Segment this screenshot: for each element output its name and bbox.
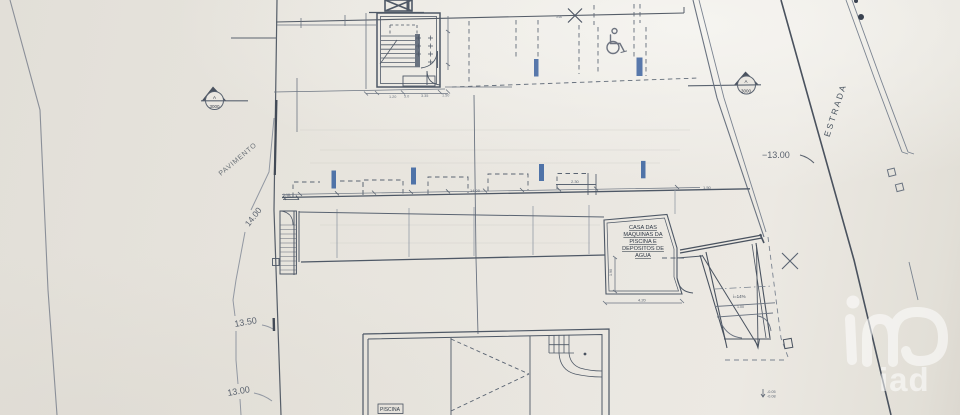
svg-text:1.50: 1.50 [442,94,449,98]
svg-text:iad: iad [879,361,930,398]
svg-text:4.20: 4.20 [638,298,647,303]
svg-text:PISCINA E: PISCINA E [629,239,657,245]
svg-text:2.30: 2.30 [571,179,580,184]
svg-text:-0.08: -0.08 [767,395,776,399]
svg-text:PAVIMENTO: PAVIMENTO [218,142,259,178]
svg-text:PISCINA: PISCINA [380,407,401,413]
svg-text:A: A [213,95,216,100]
svg-text:MAQUINAS DA: MAQUINAS DA [623,232,662,238]
svg-text:1.00: 1.00 [737,305,744,309]
svg-text:14.00: 14.00 [243,205,264,228]
svg-text:3.35: 3.35 [421,94,428,98]
svg-text:1.50: 1.50 [703,185,712,190]
svg-text:CASA DAS: CASA DAS [629,225,657,231]
svg-text:−13.00: −13.00 [762,150,790,160]
svg-text:13.00: 13.00 [227,384,251,398]
svg-text:1.90: 1.90 [609,269,613,276]
svg-text:AGUA: AGUA [635,253,651,259]
svg-text:3000: 3000 [741,89,752,94]
svg-text:3000: 3000 [209,104,220,109]
svg-text:ESTRADA: ESTRADA [822,82,849,138]
svg-text:-0.05: -0.05 [767,390,776,394]
svg-text:14.00: 14.00 [470,188,481,193]
svg-text:5.0: 5.0 [404,95,409,99]
svg-text:13.50: 13.50 [234,315,258,329]
svg-text:A: A [744,79,747,84]
svg-text:1.80: 1.80 [284,195,291,199]
svg-text:3.60: 3.60 [556,15,562,19]
svg-text:1.20: 1.20 [389,95,396,99]
svg-text:DEPOSITOS DE: DEPOSITOS DE [622,246,664,252]
svg-text:i=14%: i=14% [733,294,746,299]
